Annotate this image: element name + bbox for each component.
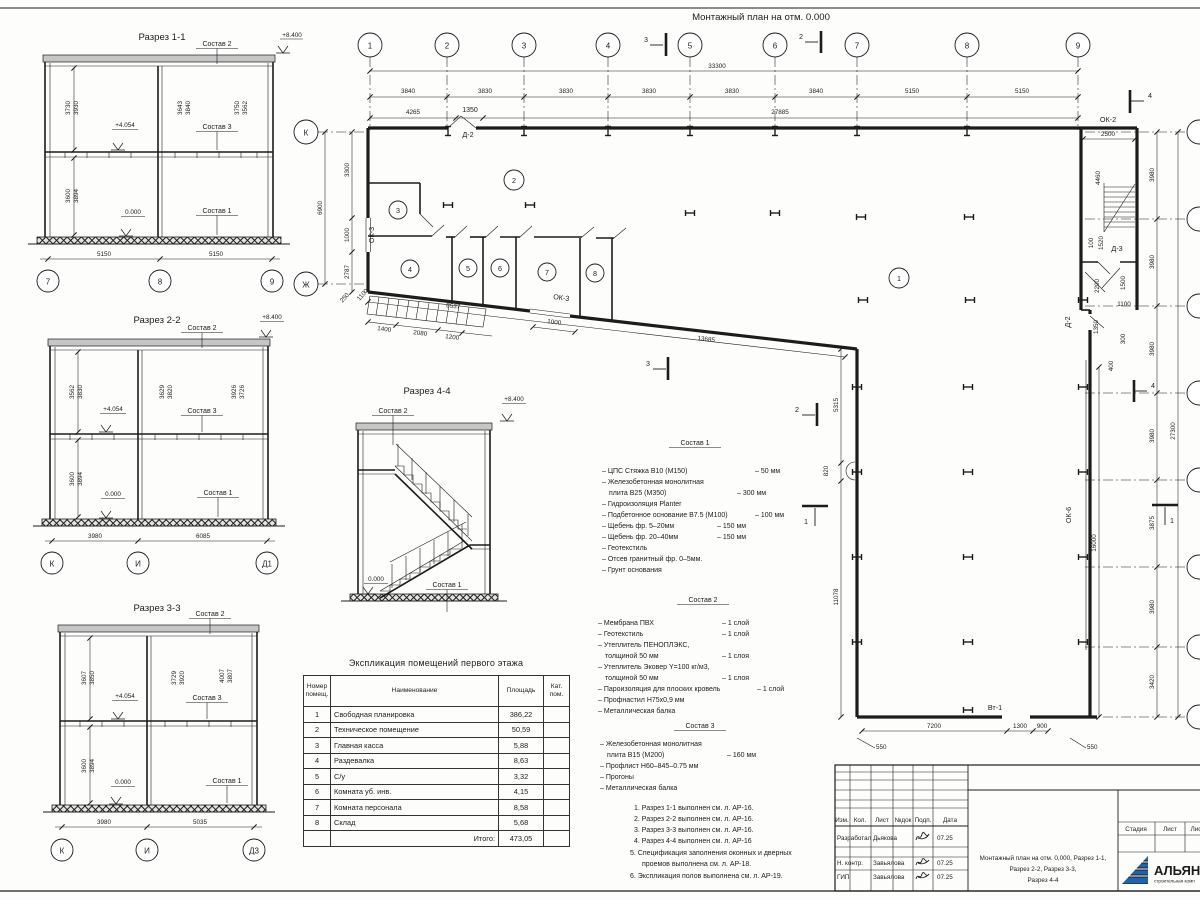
layer-item: – Геотекстиль [598, 631, 644, 638]
dim-label: 3875 [1149, 516, 1156, 531]
dim-label: 900 [1037, 723, 1048, 730]
room-number: 4 [408, 265, 412, 274]
axis-bubble-label: 1 [368, 42, 373, 51]
dim-label: 4265 [406, 109, 421, 116]
dim-label: 3420 [1149, 675, 1156, 690]
table-total-row: Итого:473,05 [304, 831, 570, 847]
axis-bubble-label: 9 [270, 278, 275, 287]
stamp-date: 07.25 [937, 860, 953, 867]
layer-ref-label: Состав 1 [212, 778, 241, 785]
dim-label: 3600 [81, 759, 88, 774]
plan-title: Монтажный план на отм. 0.000 [692, 12, 830, 23]
window-label: ОК-3 [553, 292, 570, 303]
stamp-name: Завьялова [873, 860, 905, 867]
axis-bubble-label: 6 [773, 42, 778, 51]
section-mark-label: 4 [1148, 91, 1152, 100]
room-schedule-table: Номер помещ. Наименование Площадь Кат. п… [303, 675, 570, 847]
dim-label: 5150 [905, 88, 920, 95]
layer-value: – 50 мм [755, 468, 780, 475]
room-schedule: Экспликация помещений первого этажа Номе… [300, 658, 572, 847]
table-row: 8Склад5,68 [304, 815, 570, 831]
composition-title: Состав 3 [685, 723, 714, 730]
table-row: 4Раздевалка8,63 [304, 753, 570, 769]
layer-value: – 1 слоя [722, 675, 749, 682]
layer-item: – Утеплитель ПЕНОПЛЭКС, [598, 642, 689, 649]
dim-label: 3820 [167, 385, 174, 400]
layer-ref-label: Состав 2 [187, 325, 216, 332]
table-row: 3Главная касса5,88 [304, 738, 570, 754]
dim-label: 5150 [1015, 88, 1030, 95]
dim-label: 3894 [89, 759, 96, 774]
stamp-col-header: Подп. [915, 817, 932, 824]
layer-ref-label: Состав 2 [378, 408, 407, 415]
axis-bubble-label: 2 [445, 42, 450, 51]
dim-label: 3730 [65, 101, 72, 116]
dim-label: 1000 [547, 318, 562, 327]
layer-value: – 300 мм [737, 490, 766, 497]
grid-axes-top: 1 2 3 4 5 6 7 8 9 [358, 33, 1090, 130]
col-header: Кат. пом. [544, 676, 570, 707]
dim-label: 1200 [445, 333, 460, 342]
stamp-col-header: Изм. [835, 817, 849, 824]
note-line: 1. Разрез 1-1 выполнен см. л. АР-16. [634, 805, 754, 812]
axis-bubble-label: 3 [522, 42, 527, 51]
section-title: Разрез 2-2 [133, 315, 180, 326]
dim-label: 550 [876, 744, 887, 751]
composition-3: Состав 3 – Железобетонная монолитная пли… [600, 723, 756, 792]
layer-item: – Гидроизоляция Planter [602, 501, 682, 508]
section-mark-label: 1 [804, 517, 808, 526]
plan-inner-dimensions: 5315 820 11078 [823, 346, 855, 719]
dim-label: 1350 [1093, 320, 1100, 335]
dim-label: 300 [1120, 333, 1127, 344]
dim-label: 3840 [185, 101, 192, 116]
room-number: 5 [466, 264, 470, 273]
table-row: 6Комната уб. инв.4,15 [304, 784, 570, 800]
layer-item: – Мембрана ПВХ [598, 619, 654, 627]
stamp-date: 07.25 [937, 835, 953, 842]
dim-label: 2200 [1094, 279, 1101, 294]
table-row: 1Свободная планировка386,22 [304, 707, 570, 723]
grid-axes-left: К Ж 6900 3300 1000 2787 250 1100 [294, 120, 370, 304]
section-mark-label: 3 [644, 35, 648, 44]
col-header: Наименование [331, 676, 499, 707]
elevation-label: 0.000 [368, 576, 384, 583]
dim-label: 7200 [927, 723, 942, 730]
dim-label: 2787 [344, 265, 351, 280]
room-number: 1 [897, 274, 901, 283]
axis-bubble-label: 8 [965, 42, 970, 51]
layer-ref-label: Состав 3 [192, 695, 221, 702]
dim-label: 3920 [179, 671, 186, 686]
composition-title: Состав 2 [688, 597, 717, 604]
section-1-1: Разрез 1-1 3730 3930 3643 3840 3750 3562… [28, 32, 303, 292]
doc-title-line: Разрез 4-4 [1028, 877, 1059, 884]
dim-label: 5150 [209, 251, 224, 258]
company-logo-subtitle: строительная комп [1154, 879, 1195, 884]
plan-bottom-dimensions: 7200 1300 900 550 550 [857, 723, 1098, 751]
elevation-label: +8.400 [504, 396, 524, 403]
axis-bubble-label: И [135, 560, 141, 569]
axis-bubble-label: К [60, 847, 65, 856]
dim-label: 3830 [725, 88, 740, 95]
section-mark-label: 2 [799, 32, 803, 41]
axis-bubble-label: Ж [302, 281, 310, 290]
axis-bubble-label: Д1 [262, 560, 272, 569]
elevation-label: 0.000 [105, 491, 121, 498]
dim-label: 3729 [171, 671, 178, 686]
dim-label: 3830 [642, 88, 657, 95]
dim-label: 3600 [69, 472, 76, 487]
assembly-plan: Монтажный план на отм. 0.000 1 2 3 4 5 6… [294, 12, 1200, 751]
layer-value: – 1 слой [722, 630, 749, 638]
doc-title-line: Монтажный план на отм. 0,000, Разрез 1-1… [980, 854, 1107, 862]
layer-item: – Металлическая балка [598, 707, 675, 715]
dim-label: 3980 [88, 533, 103, 540]
dim-label: 3750 [234, 101, 241, 116]
layer-item: – Геотекстиль [602, 545, 648, 552]
layer-ref-label: Состав 1 [203, 490, 232, 497]
axis-bubble-label: К [50, 560, 55, 569]
elevation-label: +8.400 [262, 314, 282, 321]
stair-section [358, 444, 490, 598]
door-label: Д-3 [1111, 244, 1122, 253]
axis-bubble-label: 8 [158, 278, 163, 287]
layer-value: – 160 мм [727, 752, 756, 759]
dim-label: 1500 [1120, 276, 1127, 291]
axis-bubble-label: 7 [855, 42, 860, 51]
dim-label: 3894 [73, 189, 80, 204]
doc-title-line: Разрез 2-2, Разрез 3-3, [1009, 866, 1076, 873]
dim-label: 3980 [1149, 342, 1156, 357]
dim-label: 3300 [344, 163, 351, 178]
layer-item: – Прогоны [600, 774, 634, 781]
stamp-col-header: Кол. [854, 817, 867, 824]
layer-item: – Подбетонное основание В7.5 (М100) [602, 511, 728, 519]
note-line: 2. Разрез 2-2 выполнен см. л. АР-16. [634, 816, 754, 823]
entrance-ramp: 8537 1400 2080 1200 1000 ОК-3 13685 [365, 292, 847, 360]
note-line: 5. Спецификация заполнения оконных и две… [630, 850, 792, 857]
stamp-role: ГИП [837, 874, 850, 881]
dim-label: 3894 [77, 472, 84, 487]
layer-value: – 1 слой [757, 685, 784, 693]
room-number: 2 [512, 176, 516, 185]
room-numbers: 1 2 3 4 5 6 7 8 [389, 170, 909, 288]
table-row: 7Комната персонала8,58 [304, 800, 570, 816]
layer-item: – Профнастил Н75х0,9 мм [598, 697, 685, 704]
dim-label: 4460 [1095, 171, 1102, 186]
dim-label: 1300 [1013, 723, 1028, 730]
dim-label: 100 [1088, 237, 1095, 248]
dim-label: 3830 [77, 385, 84, 400]
dim-label: 3930 [73, 101, 80, 116]
stamp-col-header: Дата [943, 817, 957, 824]
stamp-name: Завьялова [873, 874, 905, 881]
section-2-2: Разрез 2-2 3562 3830 3629 3820 3926 3726… [33, 314, 285, 574]
layer-ref-label: Состав 1 [202, 208, 231, 215]
layer-value: – 150 мм [717, 534, 746, 541]
section-title: Разрез 4-4 [403, 386, 451, 397]
drawing-sheet: Монтажный план на отм. 0.000 1 2 3 4 5 6… [0, 0, 1200, 900]
dim-label: 3562 [242, 101, 249, 116]
dim-label: 3726 [239, 385, 246, 400]
dim-label: 5150 [97, 251, 112, 258]
section-4-4: Разрез 4-4 Состав 2 +8.400 0.000 Состав … [341, 386, 526, 612]
dim-label: 1000 [344, 228, 351, 243]
elevation-label: +4.054 [115, 122, 135, 129]
plan-walls [366, 116, 1137, 717]
table-row: 2Техническое помещение50,59 [304, 722, 570, 738]
dim-label: 11078 [833, 588, 840, 606]
room-schedule-title: Экспликация помещений первого этажа [300, 658, 572, 668]
dim-label: 3830 [478, 88, 493, 95]
title-block: Изм. Кол. Лист №док Подп. Дата Разработа… [835, 765, 1200, 891]
dim-label: 1520 [1098, 236, 1105, 251]
room-number: 7 [545, 268, 549, 277]
room-number: 8 [593, 269, 597, 278]
dim-label: 3926 [231, 385, 238, 400]
dim-label: 1400 [377, 325, 392, 334]
layer-item: – Щебень фр. 20–40мм [602, 533, 678, 541]
company-logo-icon [1120, 856, 1150, 884]
dim-label: 3980 [1149, 255, 1156, 270]
layer-item: – Утеплитель Эковер Y=100 кг/м3, [598, 664, 710, 671]
axis-bubble-label: 4 [606, 42, 611, 51]
axis-bubble-label: К [304, 129, 309, 138]
layer-ref-label: Состав 3 [202, 124, 231, 131]
dim-label: 27300 [1170, 422, 1177, 440]
table-header-row: Номер помещ. Наименование Площадь Кат. п… [304, 676, 570, 707]
col-header: Площадь [499, 676, 544, 707]
stamp-stage-header: Лист [1163, 826, 1177, 833]
section-3-3: Разрез 3-3 3607 3850 3729 3920 4007 3807… [43, 603, 275, 861]
layer-item: – Грунт основания [602, 567, 662, 574]
axis-bubble-label: Д3 [249, 847, 259, 856]
signature [916, 873, 929, 879]
note-line: 4. Разрез 4-4 выполнен см. л. АР-16 [634, 838, 752, 845]
section-mark-label: 3 [646, 359, 650, 368]
section-mark-label: 1 [1170, 516, 1174, 525]
section-mark-label: 2 [795, 405, 799, 414]
axis-bubble-label: 9 [1076, 42, 1081, 51]
dim-label: 1100 [1117, 301, 1131, 308]
layer-item: толщиной 50 мм [605, 652, 659, 660]
dim-label: 3980 [1149, 429, 1156, 444]
window-label: ОК-6 [1064, 507, 1073, 523]
dim-label: 5035 [193, 819, 208, 826]
dim-label: 3629 [159, 385, 166, 400]
axis-bubble-label: 5 [688, 42, 693, 51]
stamp-col-header: Лист [875, 817, 889, 824]
layer-item: – Профлист Н60–845–0.75 мм [600, 763, 699, 770]
sheet-frame [0, 8, 1200, 891]
dim-label: 16000 [1091, 534, 1098, 552]
layer-ref-label: Состав 3 [187, 408, 216, 415]
window-label: ОК-3 [367, 227, 376, 243]
notes-list: 1. Разрез 1-1 выполнен см. л. АР-16. 2. … [630, 805, 792, 880]
dim-label: 3840 [809, 88, 824, 95]
layer-ref-label: Состав 2 [202, 41, 231, 48]
layer-item: плита В25 (М350) [609, 490, 666, 497]
dim-label: 820 [823, 465, 830, 476]
dim-label: 3980 [1149, 600, 1156, 615]
elevation-label: 0.000 [125, 209, 141, 216]
plan-right-dimensions: 16000 3980 3980 3980 3980 3875 3980 3420… [1085, 120, 1200, 729]
layer-item: – Железобетонная монолитная [600, 740, 702, 748]
plan-top-dimensions: 33300 3840 3830 3830 3830 3830 3840 5150… [367, 63, 1080, 121]
elevation-label: +4.054 [103, 406, 123, 413]
window-label: ОК-2 [1100, 115, 1116, 124]
stamp-role: Н. контр. [837, 860, 863, 867]
layer-item: толщиной 50 мм [605, 674, 659, 682]
signature [916, 832, 929, 840]
stair-block: ОК-2 2500 4460 Д-3 1520 100 2200 1500 11… [1063, 115, 1138, 371]
table-row: 5С/у3,32 [304, 769, 570, 785]
dim-label: 1350 [462, 107, 478, 114]
axis-bubble-label: И [144, 847, 150, 856]
column-symbols [444, 127, 1088, 714]
layer-item: – Железобетонная монолитная [602, 478, 704, 486]
stamp-stage-header: Стадия [1125, 826, 1146, 833]
layer-value: – 1 слой [722, 619, 749, 627]
section-mark-label: 4 [1151, 381, 1155, 390]
room-number: 6 [498, 264, 502, 273]
layer-value: – 100 мм [755, 512, 784, 519]
composition-2: Состав 2 – Мембрана ПВХ– 1 слой – Геотек… [598, 597, 784, 715]
dim-label: 3980 [97, 819, 112, 826]
plan-partitions [368, 183, 626, 320]
layer-item: – Металлическая балка [600, 784, 677, 792]
signature [916, 859, 929, 865]
layer-ref-label: Состав 2 [195, 611, 224, 618]
dim-label: 250 [339, 291, 352, 304]
dim-label: 400 [1108, 360, 1115, 371]
section-cut-marks: 3 2 4 3 2 1 1 4 [644, 31, 1178, 526]
company-logo-word: АЛЬЯН [1154, 863, 1200, 878]
dim-label: 3850 [89, 671, 96, 686]
composition-title: Состав 1 [680, 440, 709, 447]
dim-label: 3840 [401, 88, 416, 95]
stamp-date: 07.25 [937, 874, 953, 881]
layer-value: – 150 мм [717, 523, 746, 530]
door-label: Д-2 [1063, 316, 1072, 327]
gate-label: Вт-1 [988, 703, 1002, 712]
stamp-role: Разработал [837, 834, 872, 842]
dim-label: 3807 [227, 669, 234, 684]
stamp-stage-header: Лис [1191, 826, 1200, 833]
dim-label: 3607 [81, 671, 88, 686]
layer-item: – Отсев гранитный фр. 0–5мм. [602, 555, 702, 563]
room-number: 3 [396, 206, 400, 215]
composition-1: Состав 1 – ЦПС Стяжка В10 (М150)– 50 мм … [602, 440, 784, 574]
note-line: 3. Разрез 3-3 выполнен см. л. АР-16. [634, 827, 754, 834]
door-label: Д-2 [462, 130, 473, 139]
elevation-label: +4.054 [115, 693, 135, 700]
dim-label: 5315 [833, 398, 840, 413]
layer-item: – Щебень фр. 5–20мм [602, 522, 674, 530]
dim-label: 6085 [196, 533, 211, 540]
dim-label: 3643 [177, 101, 184, 116]
note-line: проемов выполнена см. л. АР-18. [642, 861, 751, 868]
layer-item: – ЦПС Стяжка В10 (М150) [602, 468, 687, 475]
layer-item: – Пароизоляция для плоских кровель [598, 686, 721, 693]
stamp-col-header: №док [895, 817, 912, 824]
dim-label: 13685 [697, 335, 716, 344]
stamp-name: Дьякова [873, 835, 898, 842]
section-title: Разрез 3-3 [133, 603, 180, 614]
note-line: 6. Экспликация полов выполнена см. л. АР… [630, 873, 783, 880]
drawing-canvas: Монтажный план на отм. 0.000 1 2 3 4 5 6… [0, 0, 1200, 900]
layer-item: плита В15 (М200) [607, 752, 664, 759]
dim-label: 550 [1087, 744, 1098, 751]
axis-bubble-label: 7 [46, 278, 51, 287]
dim-label: 3980 [1149, 168, 1156, 183]
layer-ref-label: Состав 1 [432, 582, 461, 589]
dim-label: 4007 [219, 669, 226, 684]
dim-label: 3600 [65, 189, 72, 204]
col-header: Номер помещ. [304, 676, 331, 707]
elevation-label: 0.000 [115, 779, 131, 786]
dim-label: 33300 [708, 63, 726, 70]
layer-value: – 1 слоя [722, 653, 749, 660]
elevation-label: +8.400 [282, 32, 302, 39]
dim-label: 3830 [559, 88, 574, 95]
dim-label: 6900 [317, 201, 324, 216]
section-title: Разрез 1-1 [138, 32, 185, 43]
dim-label: 3562 [69, 385, 76, 400]
dim-label: 2080 [413, 329, 428, 338]
dim-label: 27885 [771, 109, 789, 116]
